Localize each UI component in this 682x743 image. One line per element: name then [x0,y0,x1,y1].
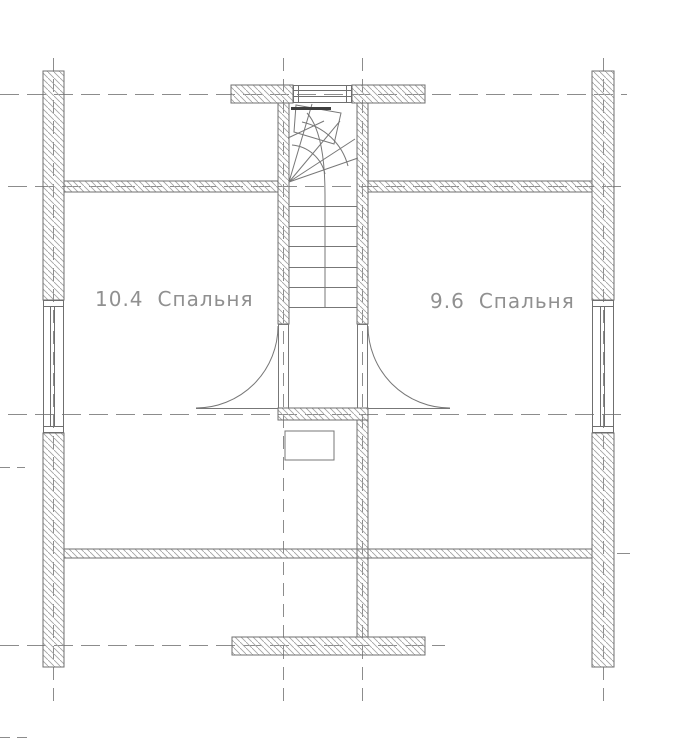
stairwell-right-wall-upper [357,103,368,324]
windows [43,85,614,433]
doors [196,324,450,409]
chimney-duct [285,431,334,460]
grid-axes [0,58,630,738]
room-area-value: 10.4 [95,287,144,311]
walls [43,71,614,667]
stairwell-bottom-wall [278,408,368,420]
door-swing-arc [196,326,278,408]
room-name: Спальня [479,289,575,313]
bottom-wall-stub [232,637,425,655]
room-label-left-bedroom: 10.4 Спальня [95,287,254,311]
right-exterior-wall-lower [592,433,614,667]
left-bedroom-door [196,324,289,409]
top-wall-left-segment [231,85,293,103]
left-exterior-wall-upper [43,71,64,300]
interior-wall-upper-right [368,181,592,192]
right-exterior-wall-upper [592,71,614,300]
stair-treads [289,207,357,308]
stair-winder-fan [288,104,358,182]
room-label-right-bedroom: 9.6 Спальня [430,289,575,313]
room-name: Спальня [158,287,254,311]
door-swing-arc [368,326,450,408]
left-exterior-wall-lower [43,433,64,667]
stairwell-right-wall-lower [357,420,368,637]
floor-plan-drawing [0,0,682,743]
right-bedroom-door [357,324,450,409]
interior-wall-lower [64,549,592,558]
staircase [288,104,358,308]
room-area-value: 9.6 [430,289,465,313]
top-wall-right-segment [352,85,425,103]
floor-plan: 10.4 Спальня 9.6 Спальня [0,0,682,743]
interior-wall-upper-left [64,181,278,192]
stairwell-left-wall [278,103,289,324]
